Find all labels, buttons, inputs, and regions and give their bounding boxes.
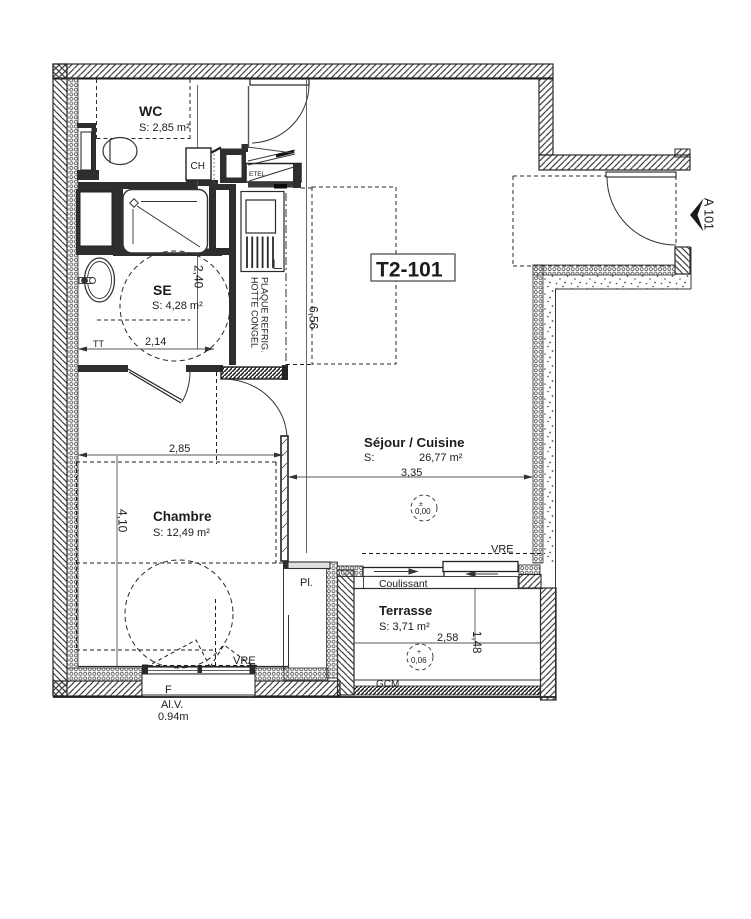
svg-text:PLAQUE REFRIG.: PLAQUE REFRIG. <box>260 277 270 353</box>
svg-text:VRE: VRE <box>491 544 514 556</box>
svg-text:2,40: 2,40 <box>192 265 206 289</box>
svg-text:A 101: A 101 <box>702 198 716 230</box>
svg-text:0,06: 0,06 <box>411 656 427 665</box>
svg-text:Pl.: Pl. <box>300 577 313 589</box>
svg-text:TT: TT <box>93 339 104 349</box>
svg-text:2,58: 2,58 <box>437 632 458 644</box>
svg-text:S:: S: <box>364 452 374 464</box>
svg-text:T2-101: T2-101 <box>376 259 443 282</box>
svg-text:ETEL: ETEL <box>249 171 266 178</box>
svg-text:2,85: 2,85 <box>169 443 190 455</box>
svg-text:1,48: 1,48 <box>470 631 482 653</box>
svg-text:26,77 m²: 26,77 m² <box>419 452 463 464</box>
svg-text:0,00: 0,00 <box>415 507 431 516</box>
svg-text:2,14: 2,14 <box>145 336 166 348</box>
svg-text:3,35: 3,35 <box>401 467 422 479</box>
svg-text:S: 2,85 m²: S: 2,85 m² <box>139 122 190 134</box>
svg-text:WC: WC <box>139 103 162 119</box>
svg-text:Séjour / Cuisine: Séjour / Cuisine <box>364 435 465 450</box>
svg-text:Terrasse: Terrasse <box>379 603 432 618</box>
svg-text:0.94m: 0.94m <box>158 711 189 723</box>
svg-text:F: F <box>165 684 172 696</box>
svg-text:SE: SE <box>153 282 172 298</box>
svg-text:GCM: GCM <box>376 679 399 690</box>
svg-text:Chambre: Chambre <box>153 509 212 524</box>
svg-text:Al.V.: Al.V. <box>161 699 183 711</box>
svg-text:HOTTE CONGEL: HOTTE CONGEL <box>250 277 260 348</box>
svg-text:CH: CH <box>191 161 205 172</box>
svg-text:6,56: 6,56 <box>307 306 321 330</box>
svg-text:S: 3,71 m²: S: 3,71 m² <box>379 621 430 633</box>
svg-text:+: + <box>417 649 421 656</box>
svg-text:4,10: 4,10 <box>116 509 130 533</box>
svg-text:S: 4,28 m²: S: 4,28 m² <box>152 300 203 312</box>
svg-text:S: 12,49 m²: S: 12,49 m² <box>153 527 210 539</box>
